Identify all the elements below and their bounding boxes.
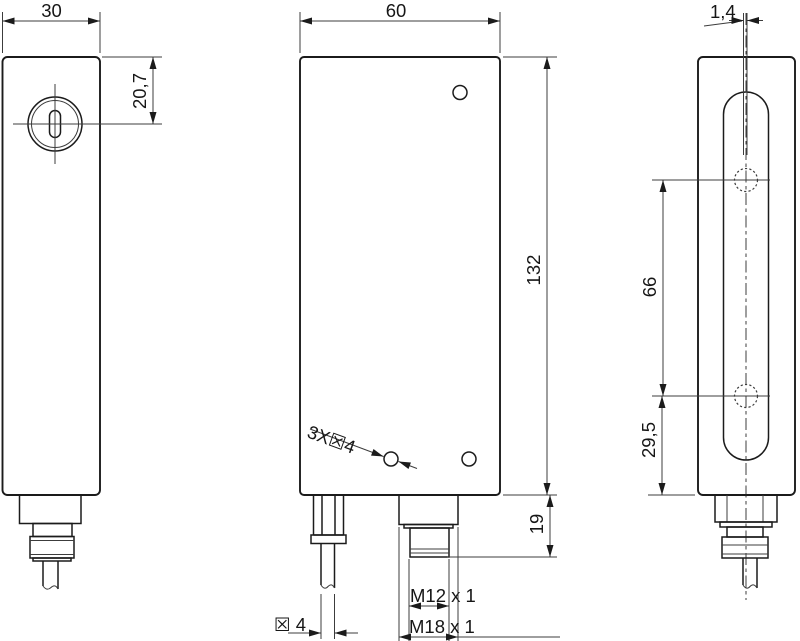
connector-nut — [722, 537, 768, 558]
mounting-hole-bottom-right — [462, 452, 476, 466]
gland-nut-lines — [314, 495, 344, 535]
front-view: 3X☒4 60 132 — [274, 0, 560, 641]
holes-callout: 3X☒4 — [305, 421, 417, 468]
holes-note-label: 3X☒4 — [305, 421, 359, 458]
left-view-connector — [20, 495, 82, 589]
connector-block-lines — [727, 495, 763, 522]
dim-label-30: 30 — [41, 0, 62, 21]
connector-block — [20, 495, 82, 524]
dim-label-66: 66 — [639, 277, 660, 298]
dimension-60: 60 — [300, 0, 500, 53]
dim-label-m18: M18 x 1 — [409, 616, 475, 637]
dim-label-132: 132 — [523, 255, 544, 286]
dim-label-19: 19 — [526, 514, 547, 535]
sensor-dimension-drawing: 30 20,7 3X☒4 — [0, 0, 800, 641]
dimension-29-5: 29,5 — [638, 396, 695, 495]
dim-label-60: 60 — [386, 0, 407, 21]
gland-flange — [311, 535, 346, 544]
dimension-132: 132 — [503, 57, 557, 495]
connector-nut-lines — [30, 541, 74, 555]
dimension-19: 19 — [447, 495, 557, 557]
dim-label-20-7: 20,7 — [129, 73, 150, 109]
cable-break-line — [743, 585, 757, 588]
dimension-1-4: 1,4 — [704, 1, 763, 26]
dim-label-cable-dia: ☒ 4 — [274, 614, 306, 635]
cable-sides — [43, 561, 58, 589]
dim-label-29-5: 29,5 — [638, 422, 659, 458]
dimension-66: 66 — [639, 180, 663, 396]
extension-lines — [321, 594, 335, 639]
leader-tail — [399, 462, 418, 469]
m18-block — [399, 495, 458, 525]
cable-break-line — [321, 585, 335, 588]
cable-break-line — [43, 586, 58, 589]
dimension-m18: M18 x 1 — [399, 527, 560, 641]
dimension-30: 30 — [3, 0, 101, 53]
dimension-20-7: 20,7 — [102, 57, 162, 124]
mounting-hole-bottom-left — [384, 452, 398, 466]
cable-sides — [743, 558, 757, 588]
technical-drawing-page: 30 20,7 3X☒4 — [0, 0, 800, 641]
connector-lip — [33, 558, 71, 561]
connector-mid — [33, 524, 72, 537]
connector-nut-lines — [722, 545, 768, 554]
m12-thread-lines — [410, 549, 449, 553]
side-view: 1,4 66 29,5 — [638, 1, 795, 600]
left-view: 30 20,7 — [3, 0, 163, 589]
dimension-cable-dia: ☒ 4 — [274, 594, 358, 639]
front-view-cable-gland — [311, 495, 346, 588]
dim-label-m12: M12 x 1 — [410, 585, 476, 606]
left-view-body-outline — [3, 57, 101, 495]
connector-mid — [727, 527, 763, 537]
mounting-hole-top — [453, 86, 467, 100]
dim-label-1-4: 1,4 — [710, 1, 736, 22]
front-view-m12-connector — [399, 495, 458, 557]
hole-centerlines — [652, 180, 770, 396]
cable-sides — [321, 544, 335, 589]
